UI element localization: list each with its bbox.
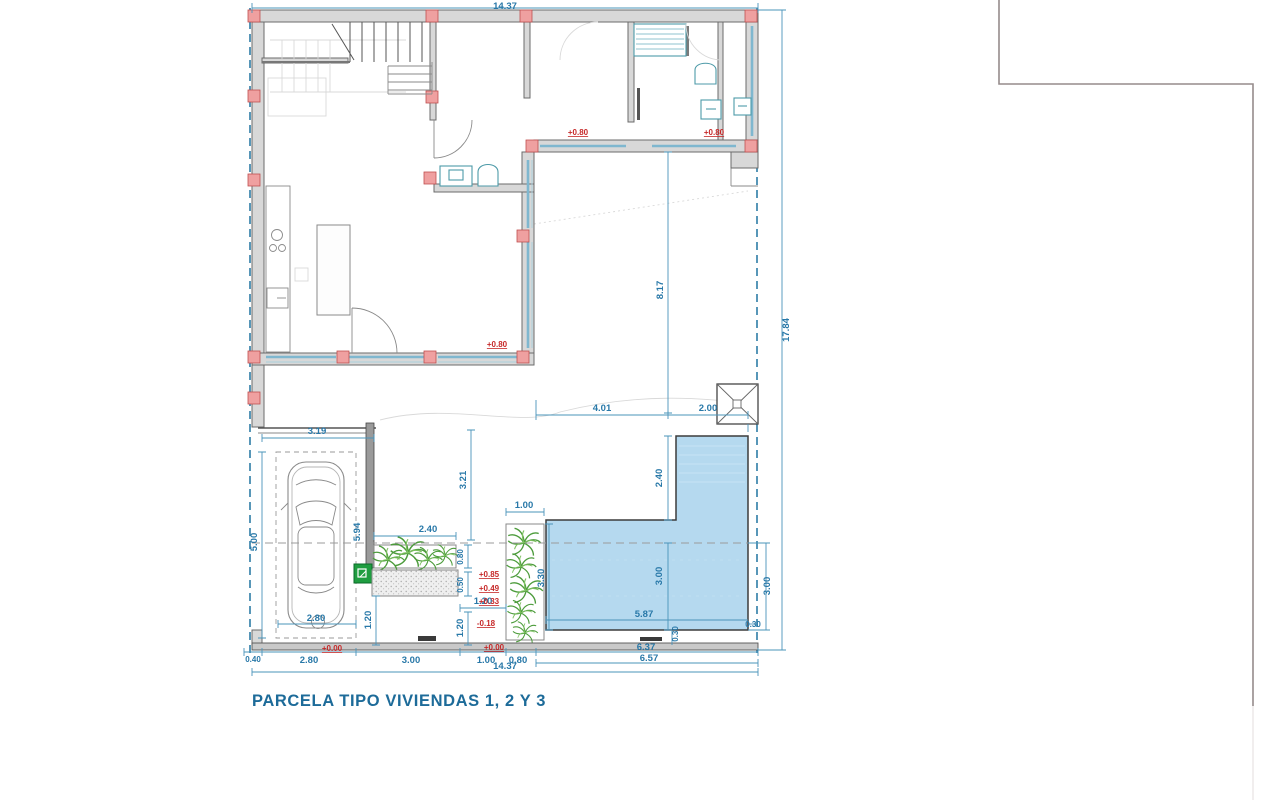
kitchen-fixtures: [266, 186, 350, 352]
dim-bottom-court: 3.00: [402, 655, 421, 666]
level-window-sill: +0.80: [487, 340, 508, 349]
pool: [546, 436, 748, 630]
dim-car-bay-width: 2.80: [307, 613, 326, 624]
dim-walk-right: 1.20: [455, 619, 466, 638]
dim-planter-width: 2.40: [419, 524, 438, 535]
dim-pool-arm-top: 2.00: [699, 403, 718, 414]
door-arcs: [352, 22, 722, 353]
dim-pool-right-depth: 3.00: [762, 577, 773, 596]
dim-garage-depth: 5.00: [249, 533, 260, 552]
level-terrace-c: +0.33: [479, 597, 500, 606]
floor-plan-canvas: 14.37 17.84 8.17 4.01 2.00 2.40 3.00 3.0…: [0, 0, 1280, 800]
dim-pool-edge-bottom: 0.30: [671, 626, 680, 642]
dim-pool-edge-right: 0.30: [745, 620, 761, 629]
neighbor-parcel-outline: [999, 0, 1253, 800]
dim-pool-left-depth: 3.30: [536, 569, 547, 588]
dim-garage-width: 3.19: [308, 426, 327, 437]
dim-bottom-pool-b: 6.57: [640, 653, 659, 664]
level-porch-left: +0.80: [568, 128, 589, 137]
staircase: [262, 22, 432, 116]
wc-fixtures: [440, 165, 498, 187]
dim-patio-depth: 8.17: [655, 281, 666, 300]
level-deck: -0.18: [477, 619, 496, 628]
bathroom-fixtures-top: [634, 24, 751, 119]
dim-patio-width: 4.01: [593, 403, 612, 414]
level-porch-right: +0.80: [704, 128, 725, 137]
level-terrace-a: +0.85: [479, 570, 500, 579]
dim-bottom-garage: 2.80: [300, 655, 319, 666]
dim-bottom-pool-a: 6.37: [637, 642, 656, 653]
dim-pool-inner-depth: 3.00: [654, 567, 665, 586]
level-ground-walk: +0.00: [484, 643, 505, 652]
car-top-view: [281, 462, 351, 629]
floor-plan-page: 14.37 17.84 8.17 4.01 2.00 2.40 3.00 3.0…: [0, 0, 1280, 800]
dim-top-width: 14.37: [493, 1, 517, 12]
drawing-title: PARCELA TIPO VIVIENDAS 1, 2 Y 3: [252, 692, 546, 711]
dim-pool-arm-side: 2.40: [654, 469, 665, 488]
dim-right-height: 17.84: [781, 317, 792, 341]
dim-planter-strip-width: 1.00: [515, 500, 534, 511]
skylight-grate: [717, 384, 758, 424]
level-terrace-b: +0.49: [479, 584, 500, 593]
dim-court-depth: 3.21: [458, 470, 469, 489]
dim-pool-length: 5.87: [635, 609, 654, 620]
level-ground-garage: +0.00: [322, 644, 343, 653]
dim-garage-wall: 5.94: [352, 522, 363, 541]
porch-lines: [380, 168, 758, 420]
dim-bottom-offset: 0.40: [245, 655, 261, 664]
dim-step-depth: 0.50: [456, 577, 465, 593]
dim-walk-left: 1.20: [363, 611, 374, 630]
gravel-step: [372, 570, 458, 596]
dim-planter-depth: 0.80: [456, 549, 465, 565]
dim-bottom-total: 14.37: [493, 661, 517, 672]
